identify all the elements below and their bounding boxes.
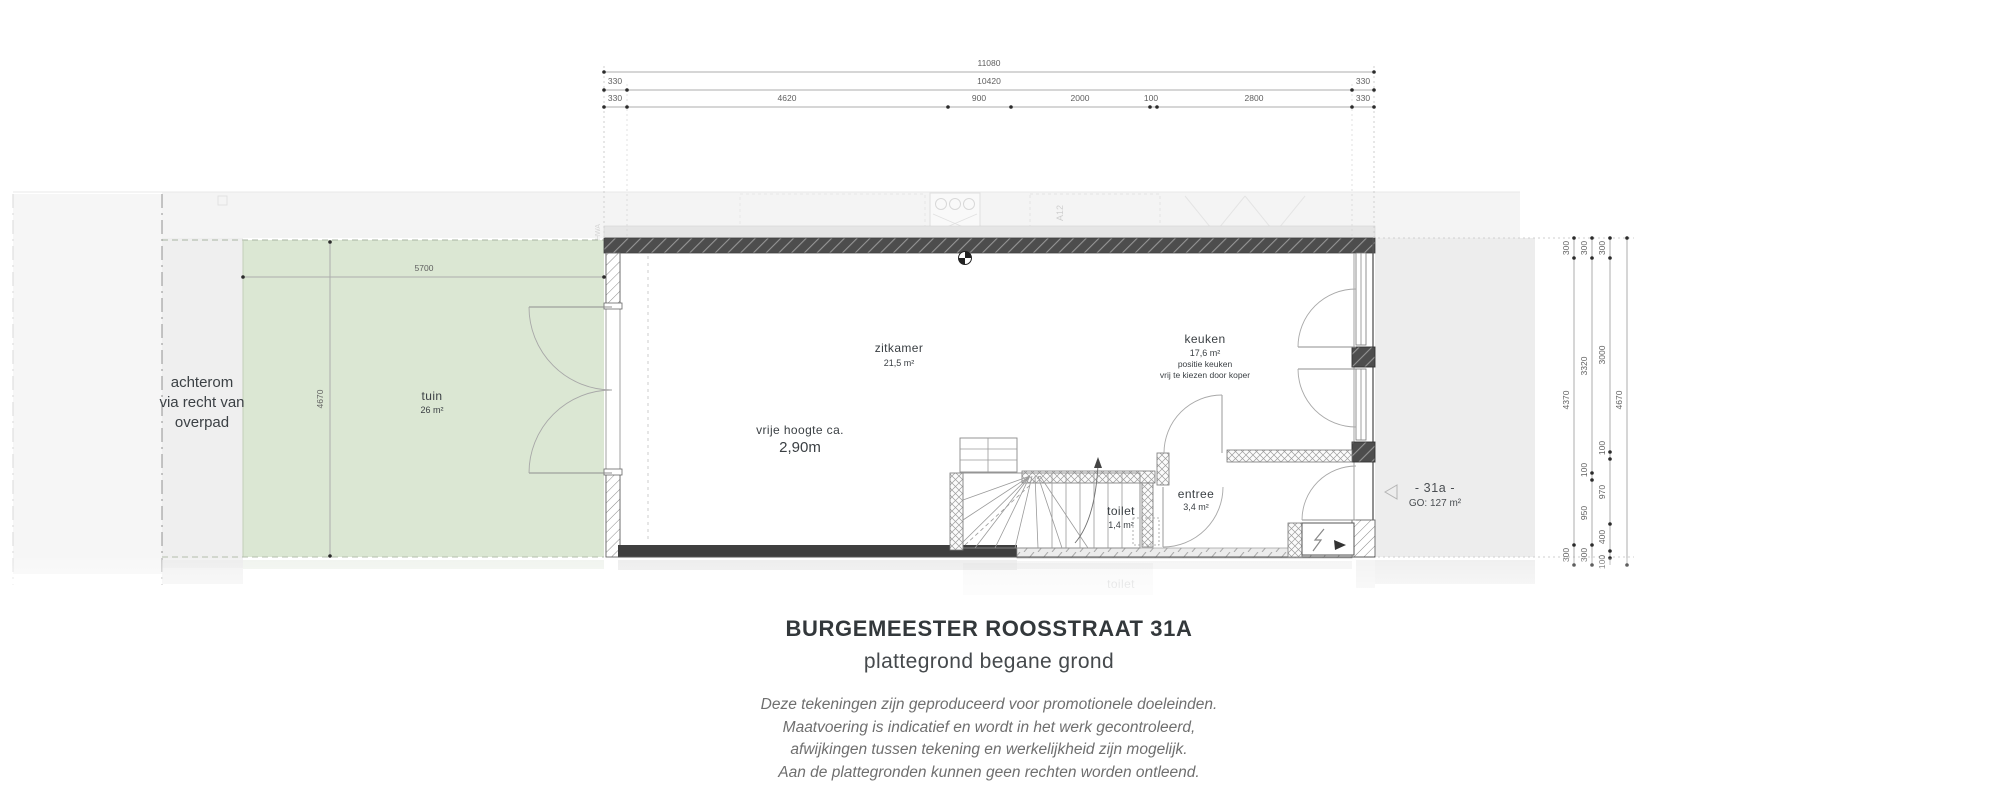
disclaimer-line-4: Aan de plattegronden kunnen geen rechten… (589, 762, 1389, 785)
zitkamer-label: zitkamer (875, 341, 924, 355)
floorplan-sheet: A12 HWA (0, 0, 2000, 800)
rdim-mid-1: 3320 (1579, 356, 1589, 375)
rdim-out-1: 3000 (1597, 345, 1607, 364)
top-party-wall (604, 238, 1375, 253)
rdim-inner-0: 300 (1561, 241, 1571, 255)
height-note-line1: vrije hoogte ca. (756, 423, 844, 437)
rdim-mid-0: 300 (1579, 241, 1589, 255)
rdim-total: 4670 (1614, 390, 1624, 409)
neighbor-area-label: GO: 127 m² (1409, 498, 1462, 509)
height-note-line2: 2,90m (779, 439, 821, 456)
access-label-line2: via recht van (159, 394, 244, 411)
dim-row2-1: 10420 (977, 76, 1001, 86)
entree-label: entree (1178, 487, 1214, 501)
rdim-out-0: 300 (1597, 241, 1607, 255)
adjacent-unit-label: A12 (1055, 205, 1065, 221)
facade-pier (606, 473, 620, 557)
dim-row3-1: 4620 (778, 93, 797, 103)
facade-pier (1352, 520, 1375, 557)
bottom-wall (618, 545, 1375, 558)
dim-row3-2: 900 (972, 93, 986, 103)
dim-total-width: 11080 (977, 58, 1000, 68)
dim-row2-2: 330 (1356, 76, 1370, 86)
disclaimer-line-1: Deze tekeningen zijn geproduceerd voor p… (589, 694, 1389, 717)
sheet-subtitle: plattegrond begane grond (589, 650, 1389, 674)
tuin-label: tuin (422, 389, 443, 403)
dim-row3-0: 330 (608, 93, 622, 103)
rdim-inner-1: 4370 (1561, 390, 1571, 409)
dim-row3-6: 330 (1356, 93, 1370, 103)
dim-row3-4: 100 (1144, 93, 1158, 103)
toilet-area-label: 1,4 m² (1108, 520, 1134, 530)
entree-wall-stub (1157, 453, 1169, 485)
corner-column (1352, 442, 1375, 462)
toilet-label: toilet (1107, 504, 1135, 518)
dim-garden-depth: 4670 (315, 389, 325, 408)
meterkast-wall (1288, 523, 1302, 557)
dim-row2-0: 330 (608, 76, 622, 86)
rdim-out-2: 100 (1597, 441, 1607, 455)
rdim-out-3: 970 (1597, 485, 1607, 499)
dim-row3-3: 2000 (1071, 93, 1090, 103)
door-jamb (604, 303, 622, 309)
title-block: BURGEMEESTER ROOSSTRAAT 31A plattegrond … (589, 616, 1389, 784)
stair-block-left-wall (950, 473, 963, 550)
access-label-line1: achterom (171, 374, 234, 391)
tuin-area-label: 26 m² (420, 405, 443, 415)
zitkamer-area-label: 21,5 m² (884, 358, 915, 368)
disclaimer-line-3: afwijkingen tussen tekening en werkelijk… (589, 739, 1389, 762)
keuken-note1: positie keuken (1178, 359, 1233, 369)
hwa-marker-label: HWA (595, 224, 602, 240)
toilet-right-wall (1142, 483, 1153, 547)
neighbor-name-label: - 31a - (1415, 481, 1455, 495)
rdim-mid-3: 950 (1579, 506, 1589, 520)
dim-row3-5: 2800 (1245, 93, 1264, 103)
facade-pier (606, 253, 620, 307)
entree-area-label: 3,4 m² (1183, 502, 1209, 512)
far-left-path-area (13, 194, 162, 574)
facade-pier-column (1352, 347, 1375, 367)
dim-garden-width: 5700 (415, 263, 434, 273)
north-arrow-icon (959, 252, 972, 265)
door-jamb (604, 469, 622, 475)
keuken-entree-wall (1227, 450, 1352, 462)
keuken-area-label: 17,6 m² (1190, 348, 1221, 358)
disclaimer: Deze tekeningen zijn geproduceerd voor p… (589, 694, 1389, 784)
rdim-mid-2: 100 (1579, 463, 1589, 477)
keuken-note2: vrij te kiezen door koper (1160, 370, 1250, 380)
neighbor-31a-area (1375, 238, 1535, 557)
keuken-label: keuken (1184, 332, 1225, 346)
access-label-line3: overpad (175, 414, 229, 431)
meterkast-box (1302, 523, 1354, 555)
meter-cupboard (1288, 523, 1354, 557)
top-wall-outer-band (604, 226, 1375, 238)
floor-surface (604, 253, 1375, 545)
disclaimer-line-2: Maatvoering is indicatief en wordt in he… (589, 717, 1389, 740)
rdim-out-4: 400 (1597, 530, 1607, 544)
sheet-title: BURGEMEESTER ROOSSTRAAT 31A (589, 616, 1389, 642)
